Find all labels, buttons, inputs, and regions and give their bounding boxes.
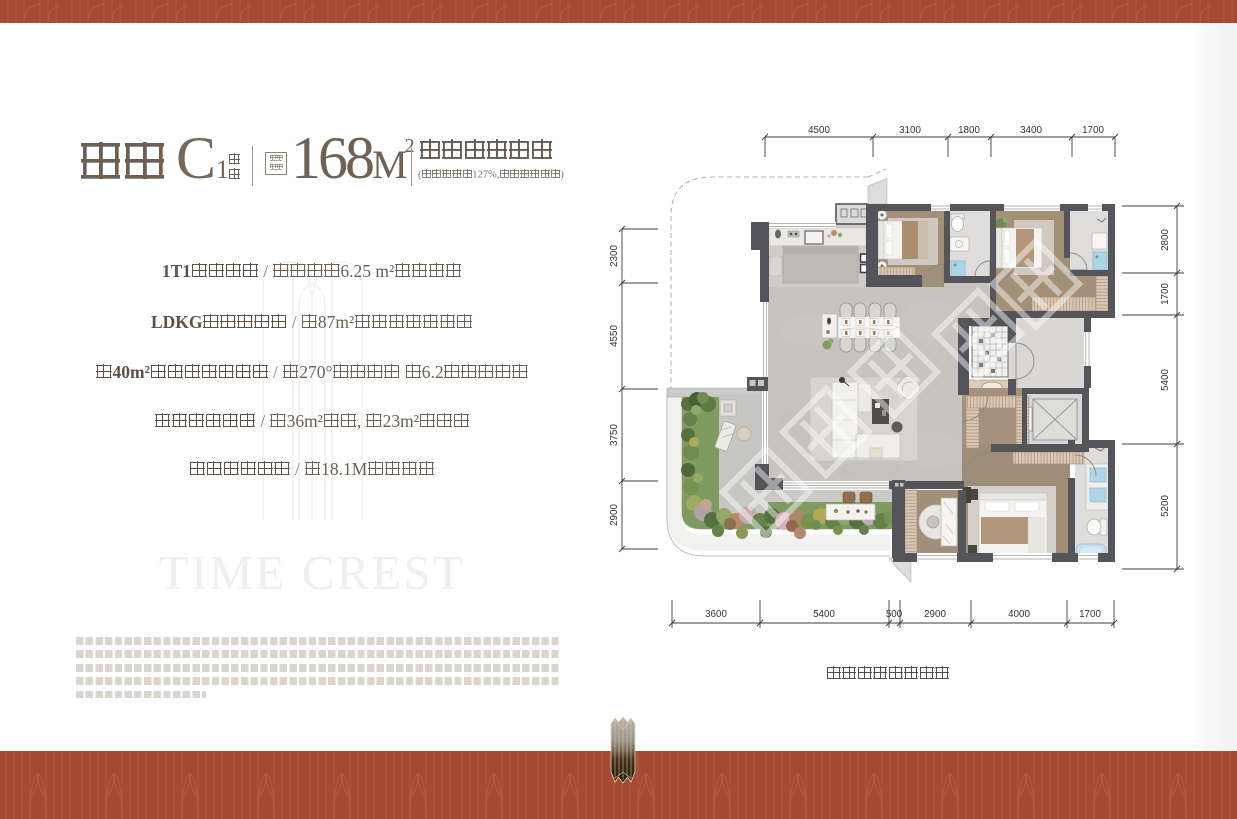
svg-text:2800: 2800 [1160, 229, 1171, 251]
svg-text:4500: 4500 [808, 125, 830, 136]
svg-text:5400: 5400 [1160, 369, 1171, 391]
svg-text:3600: 3600 [705, 609, 727, 620]
svg-text:500: 500 [886, 609, 903, 620]
svg-text:3100: 3100 [899, 125, 921, 136]
svg-text:1700: 1700 [1082, 125, 1104, 136]
svg-text:1700: 1700 [1079, 609, 1101, 620]
svg-text:4550: 4550 [609, 325, 620, 347]
svg-text:3400: 3400 [1020, 125, 1042, 136]
svg-text:2900: 2900 [924, 609, 946, 620]
svg-text:5400: 5400 [813, 609, 835, 620]
svg-text:4000: 4000 [1008, 609, 1030, 620]
svg-text:1700: 1700 [1160, 283, 1171, 305]
svg-text:2300: 2300 [609, 245, 620, 267]
svg-text:2900: 2900 [609, 504, 620, 526]
svg-text:3750: 3750 [609, 424, 620, 446]
svg-text:1800: 1800 [958, 125, 980, 136]
svg-text:5200: 5200 [1160, 495, 1171, 517]
